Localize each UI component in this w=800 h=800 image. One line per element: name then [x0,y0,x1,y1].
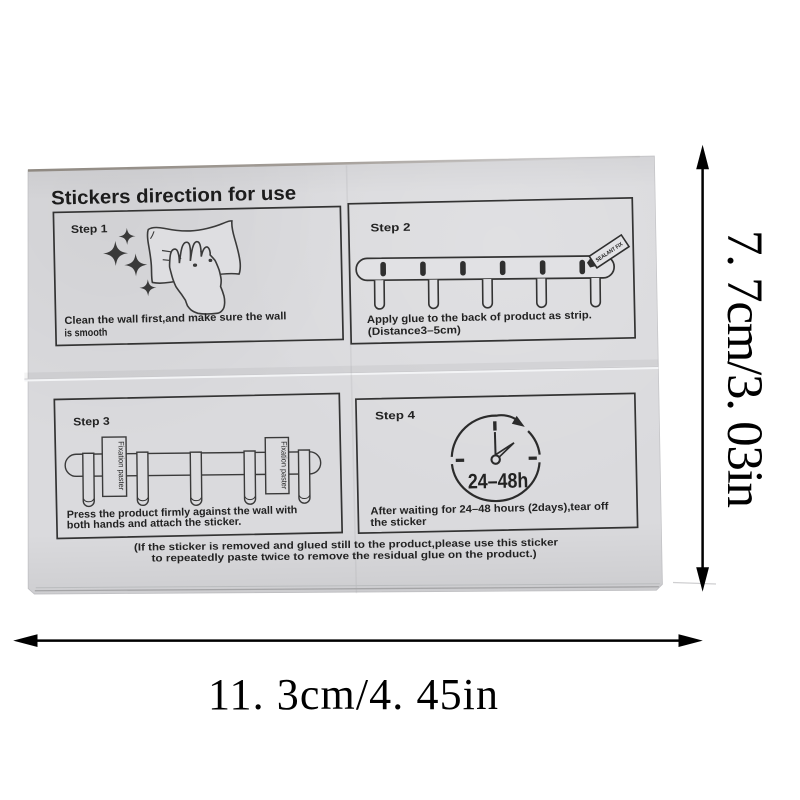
svg-text:(Distance3–5cm): (Distance3–5cm) [368,324,461,338]
svg-text:24–48h: 24–48h [468,469,529,493]
svg-text:is smooth: is smooth [64,327,107,340]
svg-text:7. 7cm/3. 03in: 7. 7cm/3. 03in [716,230,772,508]
svg-text:Step 2: Step 2 [370,222,410,235]
svg-text:Step 1: Step 1 [71,223,108,236]
svg-text:the sticker: the sticker [370,516,426,529]
svg-text:Fixation paster: Fixation paster [279,441,289,489]
svg-text:Step 4: Step 4 [375,410,416,423]
svg-text:Step 3: Step 3 [73,416,110,429]
svg-text:Fixation paster: Fixation paster [116,441,126,490]
